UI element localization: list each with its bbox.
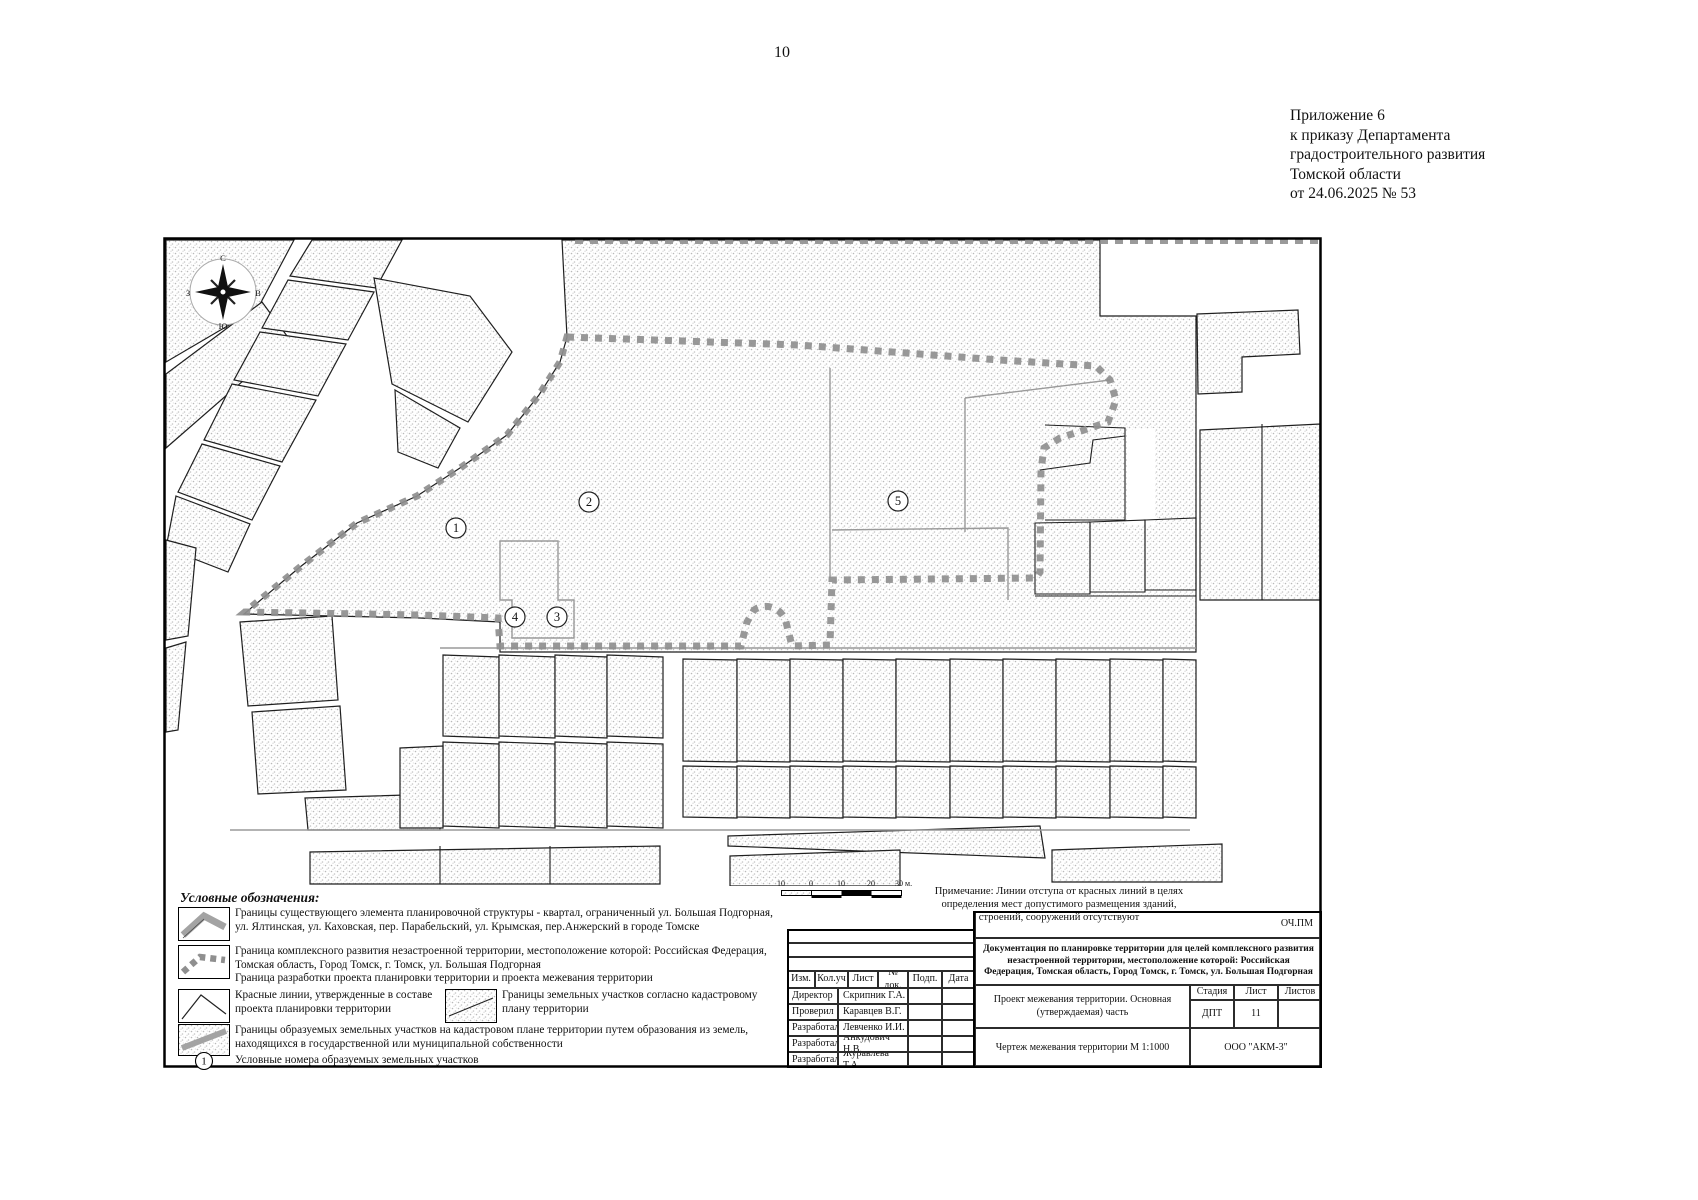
legend-item-text: Красные линии, утвержденные в составе пр… xyxy=(235,989,465,1016)
tb-name: Анкудович Н.В. xyxy=(838,1036,908,1052)
tb-sign-cell xyxy=(908,1036,942,1052)
scale-label: 20 xyxy=(867,879,875,888)
parcel xyxy=(896,766,950,818)
parcel xyxy=(737,659,790,762)
parcel-number-label: 1 xyxy=(453,521,459,535)
parcel xyxy=(166,642,186,732)
tb-sign-cell xyxy=(908,1020,942,1036)
tb-role: Разработал xyxy=(787,1052,838,1068)
legend-item-text: Границы образуемых земельных участков на… xyxy=(235,1024,787,1051)
parcel-number-label: 2 xyxy=(586,495,592,509)
tb-role: Директор xyxy=(787,988,838,1004)
existing-block-boundary-icon xyxy=(178,907,230,941)
parcel xyxy=(737,766,790,818)
title-block: ОЧ.ПМ Документация по планировке террито… xyxy=(787,911,1322,1068)
tb-company: ООО "АКМ-3" xyxy=(1190,1028,1322,1068)
tb-doc-title: Документация по планировке территории дл… xyxy=(975,938,1322,985)
tb-sign-cell xyxy=(908,1004,942,1020)
parcel xyxy=(499,655,555,738)
parcel xyxy=(607,742,663,828)
tb-date-cell xyxy=(942,1036,975,1052)
red-lines-icon xyxy=(178,989,230,1023)
tb-drawing: Чертеж межевания территории М 1:1000 xyxy=(975,1028,1190,1068)
compass-letter: С xyxy=(220,253,226,263)
parcel xyxy=(240,616,338,706)
tb-empty-row xyxy=(787,929,975,943)
tb-empty-row xyxy=(787,957,975,971)
legend-item: Красные линии, утвержденные в составе пр… xyxy=(178,989,478,1023)
appendix-note-line: от 24.06.2025 № 53 xyxy=(1290,184,1590,204)
tb-sheets-label: Листов xyxy=(1278,985,1322,1000)
compass-letter: З xyxy=(186,288,190,298)
appendix-note: Приложение 6 к приказу Департамента град… xyxy=(1290,106,1590,204)
parcel-number-label: 3 xyxy=(554,610,560,624)
appendix-note-line: градостроительного развития xyxy=(1290,145,1590,165)
parcel xyxy=(1197,310,1300,394)
tb-date-cell xyxy=(942,1020,975,1036)
parcel xyxy=(607,655,663,738)
parcel xyxy=(1056,766,1110,818)
parcel xyxy=(896,659,950,762)
scale-bar-graphic xyxy=(781,889,917,901)
legend-item-line: Граница разработки проекта планировки те… xyxy=(235,972,653,984)
tb-col-header: Кол.уч xyxy=(815,971,848,988)
svg-text:1: 1 xyxy=(201,1056,207,1068)
parcel xyxy=(1110,766,1163,818)
parcel xyxy=(950,659,1003,762)
tb-col-header: Изм. xyxy=(787,971,815,988)
tb-date-cell xyxy=(942,988,975,1004)
parcel xyxy=(1163,659,1196,762)
tb-role: Проверил xyxy=(787,1004,838,1020)
tb-sheets-value xyxy=(1278,1000,1322,1028)
tb-col-header: Лист xyxy=(848,971,878,988)
legend-item-line: Граница комплексного развития незастроен… xyxy=(235,945,767,971)
compass-center xyxy=(220,289,226,295)
appendix-note-line: к приказу Департамента xyxy=(1290,126,1590,146)
parcel-number-label: 4 xyxy=(512,610,519,624)
tb-role: Разработал xyxy=(787,1036,838,1052)
legend-item-text: Границы существующего элемента планирово… xyxy=(235,907,787,934)
legend-item: Граница комплексного развития незастроен… xyxy=(178,945,798,987)
parcel xyxy=(555,655,607,738)
page-number: 10 xyxy=(760,44,804,62)
legend-item-text: Граница комплексного развития незастроен… xyxy=(235,945,787,986)
parcel xyxy=(252,706,346,794)
tb-date-cell xyxy=(942,1052,975,1068)
legend-item: Границы существующего элемента планирово… xyxy=(178,907,798,945)
appendix-note-line: Томской области xyxy=(1290,165,1590,185)
tb-code-cell: ОЧ.ПМ xyxy=(975,911,1322,938)
parcel xyxy=(1003,659,1056,762)
parcel xyxy=(790,659,843,762)
parcel xyxy=(166,540,196,640)
parcel xyxy=(1056,659,1110,762)
tb-col-header: Подп. xyxy=(908,971,942,988)
vacant-area xyxy=(1127,428,1155,525)
parcel xyxy=(1163,766,1196,818)
tb-sheet-value: 11 xyxy=(1234,1000,1278,1028)
tb-stage-label: Стадия xyxy=(1190,985,1234,1000)
parcel xyxy=(555,742,607,828)
document-page: { "page": { "number": "10" }, "appendix_… xyxy=(0,0,1698,1200)
tb-col-header: Дата xyxy=(942,971,975,988)
tb-sign-cell xyxy=(908,1052,942,1068)
parcel xyxy=(683,659,737,762)
tb-date-cell xyxy=(942,1004,975,1020)
parcel xyxy=(843,766,896,818)
tb-name: Журавлева Т.А. xyxy=(838,1052,908,1068)
parcel xyxy=(843,659,896,762)
parcel xyxy=(683,766,737,818)
cadastral-parcels-icon xyxy=(445,989,497,1023)
parcel xyxy=(400,746,443,828)
development-boundary-icon xyxy=(178,945,230,979)
legend-item-text: Границы земельных участков согласно када… xyxy=(502,989,762,1016)
scale-label: 10 xyxy=(777,879,785,888)
tb-empty-row xyxy=(787,943,975,957)
parcel xyxy=(310,846,660,884)
scale-label: 0 xyxy=(809,879,813,888)
scale-label: 30 м. xyxy=(895,879,912,888)
parcel xyxy=(443,655,499,738)
tb-sheet-label: Лист xyxy=(1234,985,1278,1000)
tb-role: Разработал xyxy=(787,1020,838,1036)
compass-letter: В xyxy=(255,288,261,298)
legend-item: 1 Условные номера образуемых земельных у… xyxy=(178,1052,798,1074)
tb-project: Проект межевания территории. Основная (у… xyxy=(975,985,1190,1028)
parcel xyxy=(499,742,555,828)
parcel-number-icon: 1 xyxy=(178,1051,230,1071)
tb-col-header: № док. xyxy=(878,971,908,988)
scale-label: 10 xyxy=(837,879,845,888)
parcel xyxy=(1052,844,1222,882)
legend-item-text: Условные номера образуемых земельных уча… xyxy=(235,1054,787,1068)
parcel xyxy=(443,742,499,828)
compass-letter: Ю xyxy=(219,321,228,331)
parcel xyxy=(1200,424,1320,600)
parcel xyxy=(790,766,843,818)
appendix-note-line: Приложение 6 xyxy=(1290,106,1590,126)
parcel xyxy=(1110,659,1163,762)
tb-name: Скрипник Г.А. xyxy=(838,988,908,1004)
parcel xyxy=(950,766,1003,818)
scale-bar-labels: 10 0 10 20 30 м. xyxy=(777,879,913,888)
parcel-number-label: 5 xyxy=(895,494,901,508)
legend-title: Условные обозначения: xyxy=(180,890,319,906)
tb-name: Левченко И.И. xyxy=(838,1020,908,1036)
tb-sign-cell xyxy=(908,988,942,1004)
parcel xyxy=(374,278,512,422)
legend-item: Границы земельных участков согласно када… xyxy=(445,989,785,1023)
tb-stage-value: ДПТ xyxy=(1190,1000,1234,1028)
tb-name: Каравцев В.Г. xyxy=(838,1004,908,1020)
parcel xyxy=(1003,766,1056,818)
